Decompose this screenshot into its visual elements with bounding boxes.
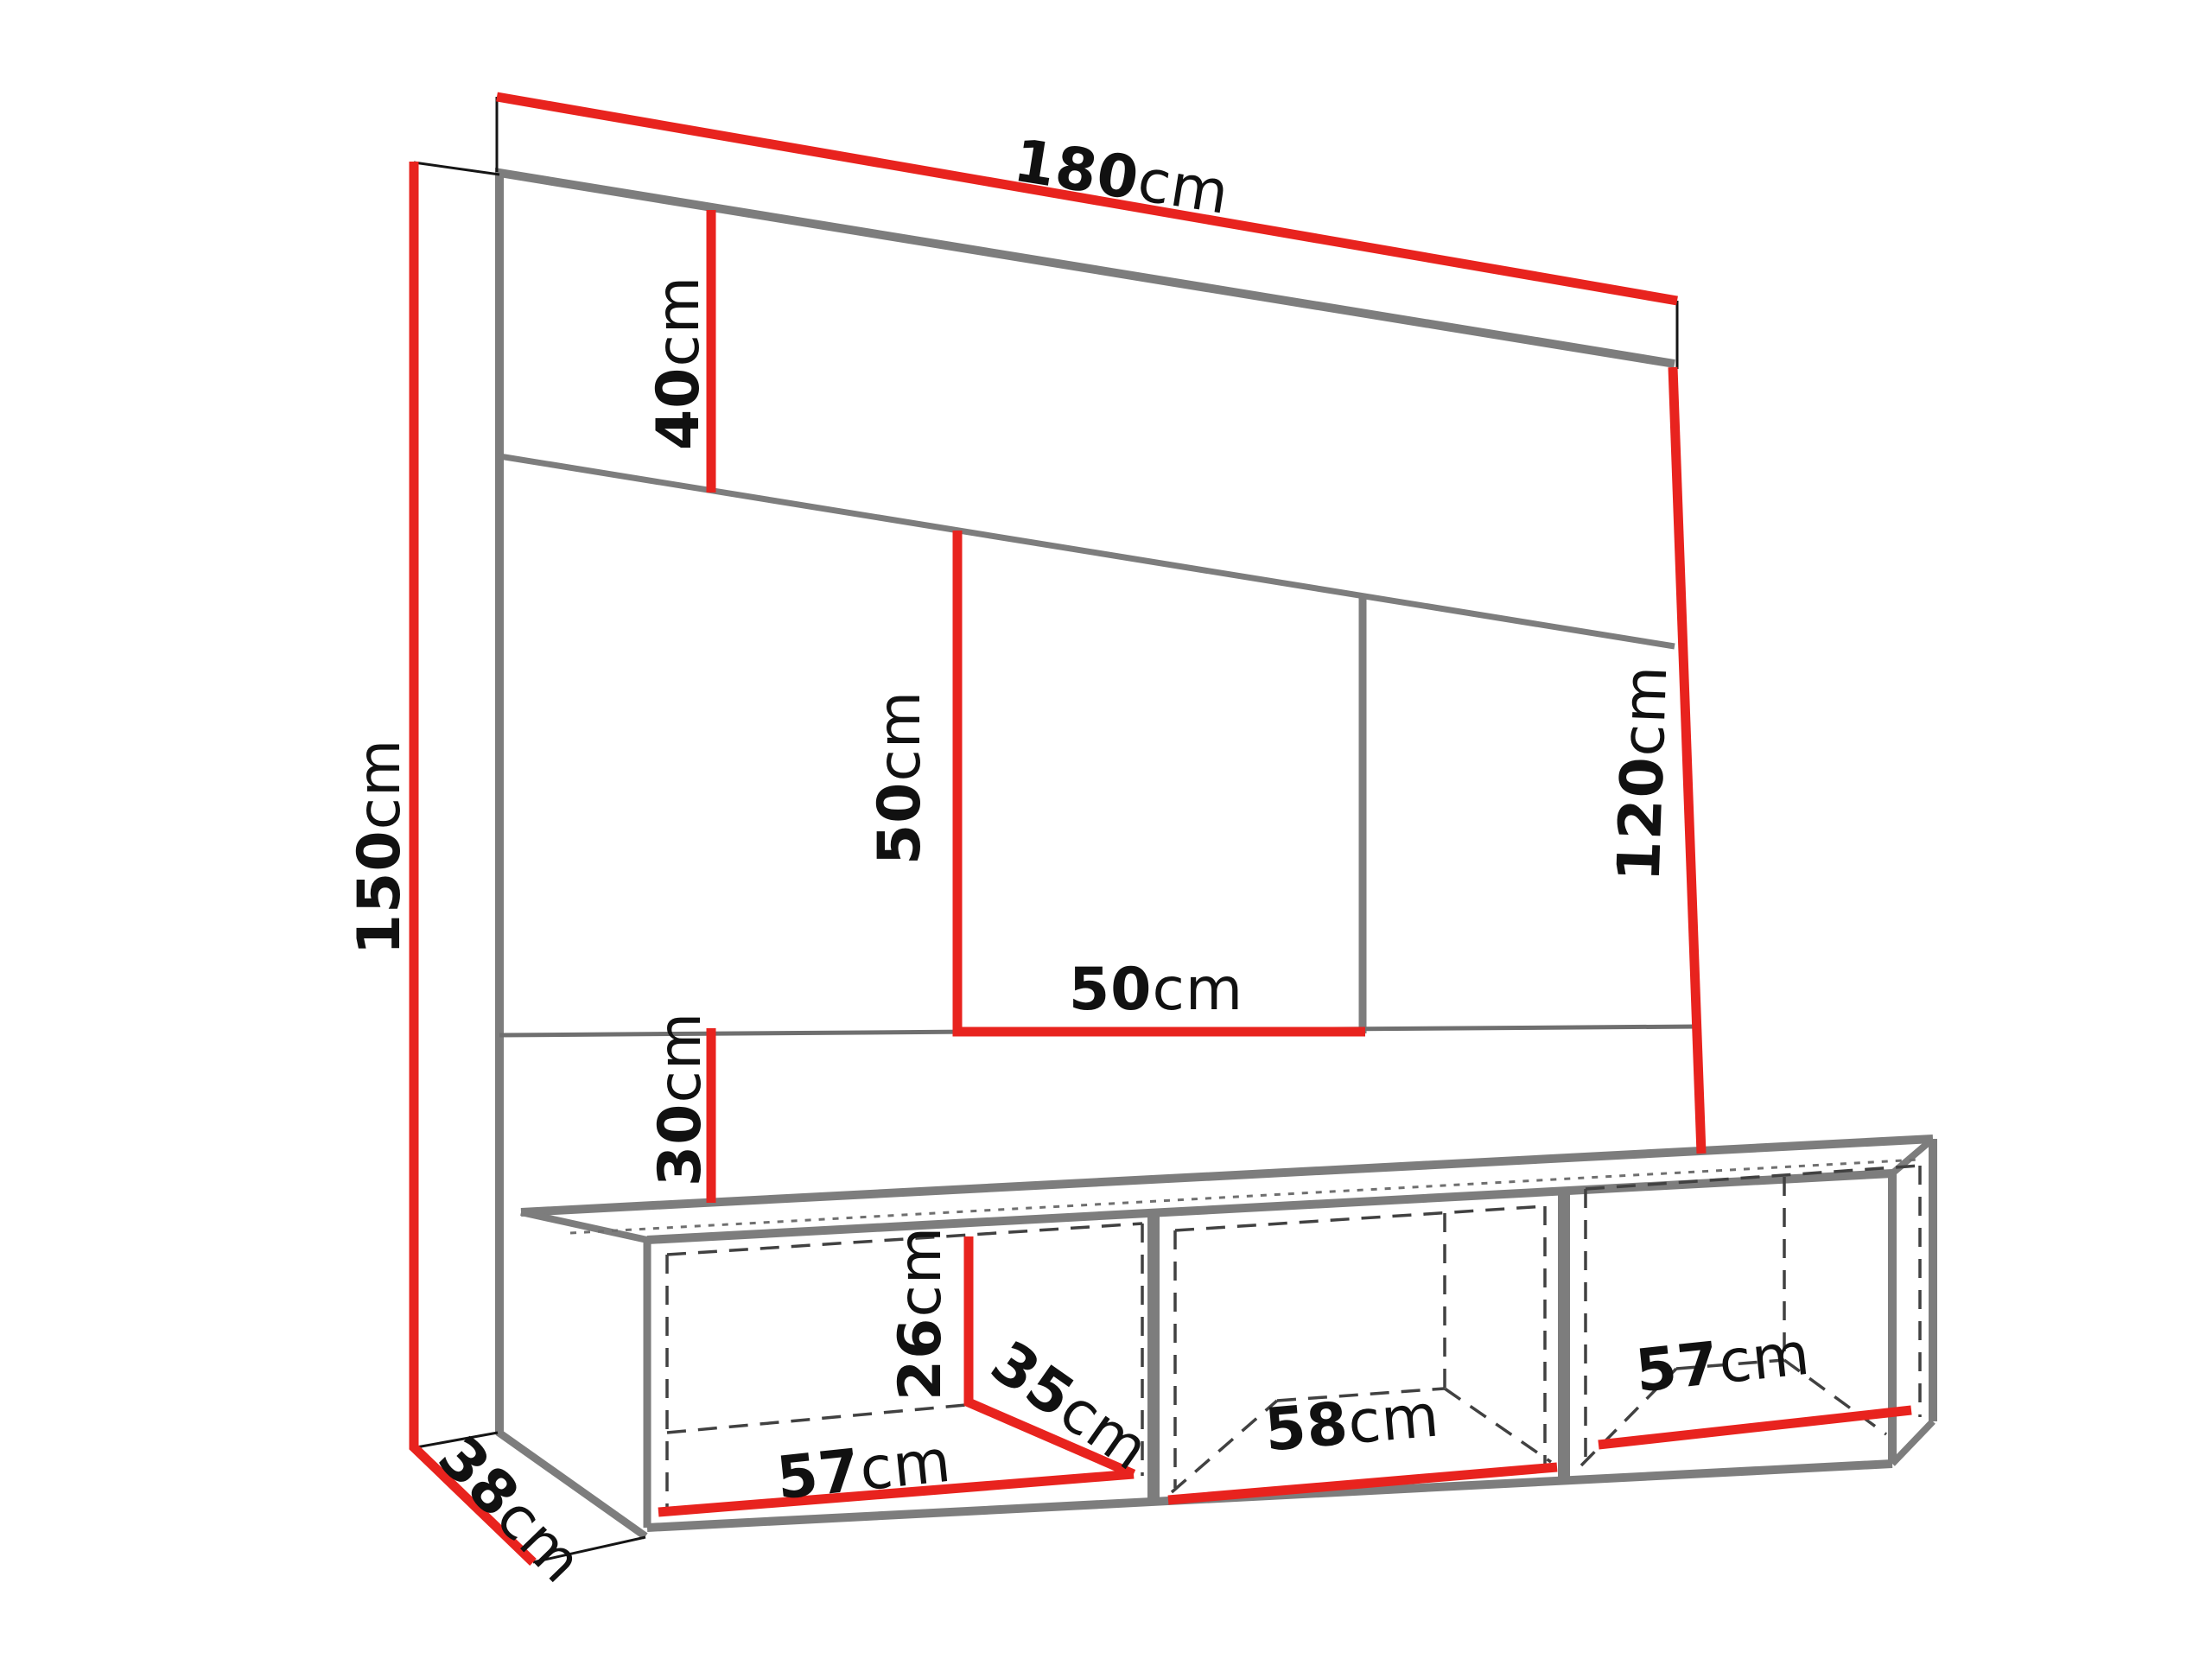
dim-label-total-height: 150cm (351, 739, 410, 956)
dim-value: 26 (887, 1318, 955, 1402)
dim-unit: cm (1715, 1320, 1813, 1398)
dim-unit: cm (856, 1427, 954, 1505)
ext-left-top (414, 162, 499, 175)
dim-value: 58 (1262, 1390, 1351, 1465)
cabinet-right-bottom-diagonal (1892, 1421, 1933, 1464)
dim-unit: cm (346, 739, 414, 830)
dim-value: 50 (866, 782, 934, 866)
dim-unit: cm (866, 690, 934, 782)
dim-value: 120 (1605, 755, 1678, 883)
dim-label-compartment-middle-width: 58cm (1262, 1387, 1441, 1460)
comp2-floor-right-diagonal (1445, 1389, 1551, 1462)
dim-label-top-panel-height: 40cm (650, 276, 709, 450)
dim-value: 50 (1069, 956, 1153, 1024)
cabinet-front-top-edge (647, 1173, 1892, 1240)
dim-unit: cm (1610, 664, 1681, 757)
dim-value: 150 (346, 829, 414, 955)
dim-unit: cm (645, 276, 713, 367)
dim-unit: cm (1153, 956, 1244, 1024)
dim-unit: cm (1133, 147, 1234, 229)
dim-value: 57 (1632, 1330, 1722, 1407)
dim-value: 30 (646, 1103, 715, 1187)
dim-unit: cm (1345, 1382, 1442, 1458)
dim-label-compartment-right-width: 57cm (1633, 1325, 1813, 1402)
dim-label-cabinet-inner-height: 26cm (892, 1226, 950, 1401)
dim-unit: cm (887, 1226, 955, 1318)
dimline-total-height-150-and-depth-38 (414, 162, 533, 1562)
dim-label-niche-height: 50cm (871, 690, 930, 865)
dim-label-right-panel-height: 120cm (1611, 664, 1677, 883)
cabinet-top-left-diagonal (521, 1212, 647, 1240)
dim-label-bottom-gap-height: 30cm (652, 1012, 710, 1186)
dim-value: 40 (645, 367, 713, 451)
comp2-floor-left-diagonal (1172, 1401, 1277, 1492)
dim-label-niche-width: 50cm (1069, 961, 1243, 1020)
extension-lines (414, 97, 1677, 1562)
cabinet-top-back-edge (521, 1139, 1933, 1212)
comp1-floor-back (667, 1405, 966, 1433)
dim-value: 57 (773, 1437, 863, 1514)
dim-unit: cm (646, 1012, 715, 1103)
top-board-bottom-edge (499, 456, 1675, 646)
dimline-compartment-right-57 (1599, 1410, 1911, 1445)
furniture-dimension-diagram: 180cm 40cm 150cm 50cm 50cm 120cm 30cm 26… (0, 0, 2212, 1659)
dim-label-compartment-left-width: 57cm (774, 1433, 954, 1510)
